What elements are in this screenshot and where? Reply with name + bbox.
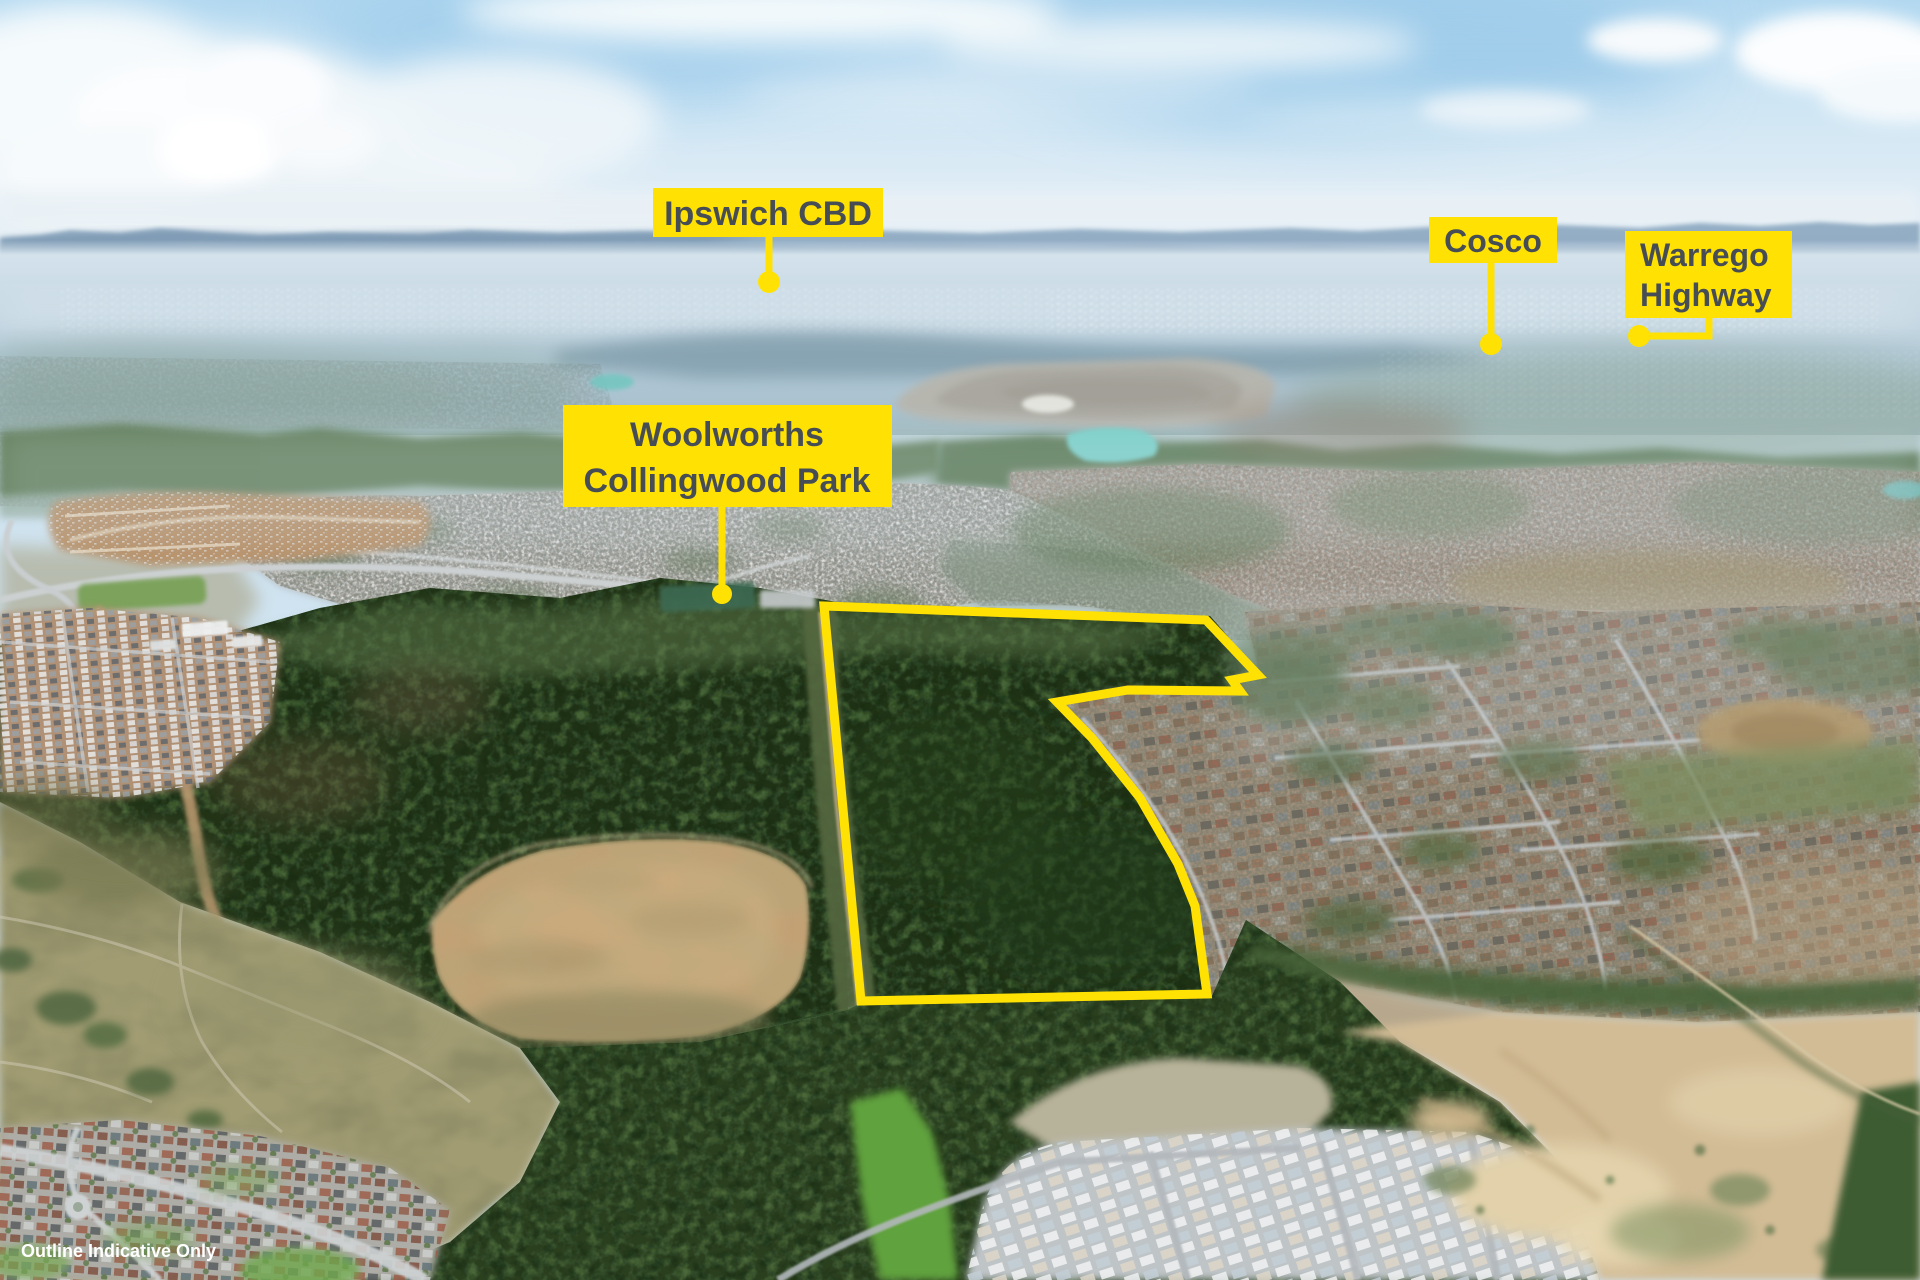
svg-text:Woolworths: Woolworths	[630, 416, 824, 454]
svg-text:Outline Indicative Only: Outline Indicative Only	[21, 1241, 216, 1261]
svg-text:Cosco: Cosco	[1444, 223, 1542, 259]
svg-text:Ipswich CBD: Ipswich CBD	[664, 195, 872, 233]
svg-text:Warrego: Warrego	[1640, 237, 1769, 273]
svg-text:Collingwood Park: Collingwood Park	[583, 462, 870, 500]
svg-text:Highway: Highway	[1640, 277, 1772, 313]
